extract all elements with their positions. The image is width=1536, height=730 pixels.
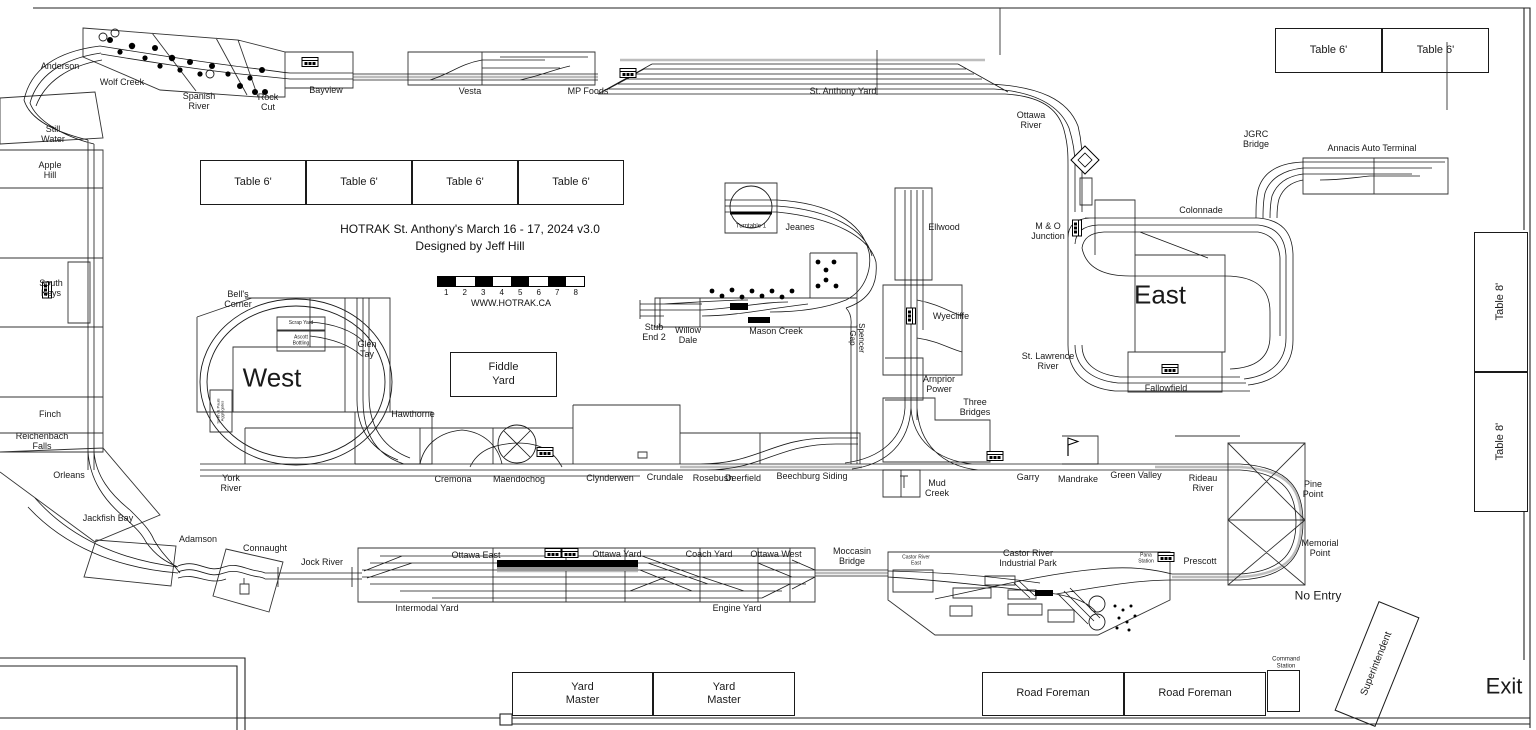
label-jock-river: Jock River: [301, 557, 343, 567]
label-ellwood: Ellwood: [928, 222, 960, 232]
label-engine-yard: Engine Yard: [713, 603, 762, 613]
label-jgrc-bridge: JGRC Bridge: [1243, 129, 1269, 149]
label-deerfield: Deerfield: [725, 473, 761, 483]
label-bayview: Bayview: [309, 85, 343, 95]
box-label: Road Foreman: [1016, 687, 1089, 700]
label-fallowfield: Fallowfield: [1145, 383, 1188, 393]
label-spanish-river: Spanish River: [183, 91, 216, 111]
label-willow-dale: Willow Dale: [675, 325, 701, 345]
box-label: Table 6': [234, 176, 272, 189]
label-pana-station: Pana Station: [1138, 553, 1154, 564]
box-label: Yard Master: [566, 681, 600, 707]
label-turntable-1: Turntable 1: [736, 224, 766, 231]
label-beechburg-siding: Beechburg Siding: [776, 471, 847, 481]
layout-plan: HOTRAK St. Anthony's March 16 - 17, 2024…: [0, 0, 1536, 730]
label-west: West: [243, 363, 302, 392]
label-spencer-gap: Spencer Gap: [847, 323, 865, 353]
box-road-foreman: Road Foreman: [1124, 672, 1266, 716]
label-exit: Exit: [1486, 675, 1523, 700]
label-mud-creek: Mud Creek: [925, 478, 949, 498]
scale-bar: 12345678 WWW.HOTRAK.CA: [437, 276, 585, 308]
label-wyecliffe: Wyecliffe: [933, 311, 969, 321]
label-still-water: Still Water: [41, 124, 65, 144]
scale-cell: [475, 277, 493, 286]
label-east: East: [1134, 280, 1186, 309]
label-st-lawrence-river: St. Lawrence River: [1022, 351, 1075, 371]
label-reichenbach-falls: Reichenbach Falls: [16, 431, 69, 451]
label-scrap-yard: Scrap Yard: [289, 321, 314, 327]
box-table-6: Table 6': [518, 160, 624, 205]
label-castor-river-industrial-park: Castor River Industrial Park: [999, 548, 1057, 568]
station-building-icon: [302, 58, 318, 67]
station-building-icon: [562, 549, 578, 558]
label-castor-river-east: Castor River East: [902, 555, 930, 566]
turntable-1-circle: [730, 186, 772, 228]
scale-number: 3: [474, 288, 493, 297]
label-ascott-bottling: Ascott Bottling: [293, 335, 310, 346]
box-table-6: Table 6': [200, 160, 306, 205]
module-outlines: [0, 8, 1448, 635]
label-colonnade: Colonnade: [1179, 205, 1223, 215]
station-building-icon: [1162, 365, 1178, 374]
box-table-6: Table 6': [1275, 28, 1382, 73]
scale-number: 7: [548, 288, 567, 297]
box-label: Table 6': [446, 176, 484, 189]
scale-bar-cells: [437, 276, 585, 287]
station-building-icon: [545, 549, 561, 558]
label-finch: Finch: [39, 409, 61, 419]
box-fiddle-yard: Fiddle Yard: [450, 352, 557, 397]
label-mp-foods: MP Foods: [568, 86, 609, 96]
flag-icon: [1068, 438, 1078, 456]
label-ottawa-east: Ottawa East: [451, 550, 500, 560]
label-m-o-junction: M & O Junction: [1031, 221, 1065, 241]
loops: [99, 29, 1105, 630]
box-label: Table 8': [1494, 283, 1507, 321]
label-connaught: Connaught: [243, 543, 287, 553]
label-cremona: Cremona: [434, 474, 471, 484]
box-box: [1267, 670, 1300, 712]
label-three-bridges: Three Bridges: [960, 397, 991, 417]
label-crundale: Crundale: [647, 472, 684, 482]
label-memorial-point: Memorial Point: [1301, 538, 1338, 558]
label-pine-point: Pine Point: [1303, 479, 1324, 499]
station-building-icon: [907, 308, 916, 324]
label-st-anthony-yard: St. Anthony Yard: [810, 86, 877, 96]
scale-number: 6: [530, 288, 549, 297]
label-wolf-creek: Wolf Creek: [100, 77, 144, 87]
label-clynderwen: Clynderwen: [586, 473, 634, 483]
box-table-6: Table 6': [412, 160, 518, 205]
label-intermodal-yard: Intermodal Yard: [395, 603, 458, 613]
label-york-river: York River: [220, 473, 241, 493]
label-vesta: Vesta: [459, 86, 482, 96]
label-prescott: Prescott: [1183, 556, 1216, 566]
scale-cell: [566, 277, 584, 286]
scale-bar-numbers: 12345678: [437, 288, 585, 297]
scale-cell: [438, 277, 456, 286]
box-yard-master: Yard Master: [512, 672, 653, 716]
label-green-valley: Green Valley: [1110, 470, 1161, 480]
box-label: Fiddle Yard: [489, 361, 519, 387]
label-coach-yard: Coach Yard: [686, 549, 733, 559]
box-label: Road Foreman: [1158, 687, 1231, 700]
station-building-icon: [620, 69, 636, 78]
label-orleans: Orleans: [53, 470, 85, 480]
label-mason-creek: Mason Creek: [749, 326, 803, 336]
label-annacis-auto-terminal: Annacis Auto Terminal: [1328, 143, 1417, 153]
box-yard-master: Yard Master: [653, 672, 795, 716]
label-maendochog: Maendochog: [493, 474, 545, 484]
icon-layer: [43, 58, 1179, 562]
box-label: Table 6': [340, 176, 378, 189]
box-table-6: Table 6': [1382, 28, 1489, 73]
gray-tracks: [353, 60, 1301, 577]
station-building-icon: [1073, 220, 1082, 236]
label-anderson: Anderson: [41, 61, 80, 71]
label-smith-pauls-aggregates: Smith & Pauls Aggregates: [217, 398, 226, 423]
scale-number: 8: [567, 288, 586, 297]
box-table-6: Table 6': [306, 160, 412, 205]
box-label: Table 6': [552, 176, 590, 189]
scale-cell: [529, 277, 547, 286]
label-rideau-river: Rideau River: [1189, 473, 1218, 493]
scale-cell: [456, 277, 474, 286]
box-label: Yard Master: [707, 681, 741, 707]
box-label: Table 8': [1494, 423, 1507, 461]
room-border: [0, 8, 1530, 730]
box-table-8: Table 8': [1474, 372, 1528, 512]
label-arnprior-power: Arnprior Power: [923, 374, 955, 394]
scale-number: 4: [493, 288, 512, 297]
box-road-foreman: Road Foreman: [982, 672, 1124, 716]
scale-number: 5: [511, 288, 530, 297]
label-bell-s-corner: Bell's Corner: [224, 289, 252, 309]
box-label: Table 6': [1310, 44, 1348, 57]
plan-title: HOTRAK St. Anthony's March 16 - 17, 2024…: [260, 222, 680, 236]
scale-cell: [511, 277, 529, 286]
label-rock-cut: Rock Cut: [258, 92, 279, 112]
box-label: Superintendent: [1359, 630, 1396, 697]
label-south-keys: South Keys: [39, 278, 63, 298]
label-no-entry: No Entry: [1295, 589, 1342, 602]
plan-designer: Designed by Jeff Hill: [260, 239, 680, 253]
station-building-icon: [537, 448, 553, 457]
label-mandrake: Mandrake: [1058, 474, 1098, 484]
label-garry: Garry: [1017, 472, 1040, 482]
label-hawthorne: Hawthorne: [391, 409, 435, 419]
track-diagram: [0, 0, 1536, 730]
scale-cell: [493, 277, 511, 286]
storage-tank: [1089, 596, 1105, 612]
label-ottawa-west: Ottawa West: [750, 549, 801, 559]
scale-cell: [548, 277, 566, 286]
label-stub-end-2: Stub End 2: [642, 322, 666, 342]
box-table-8: Table 8': [1474, 232, 1528, 372]
label-moccasin-bridge: Moccasin Bridge: [833, 546, 871, 566]
label-adamson: Adamson: [179, 534, 217, 544]
station-building-icon: [1158, 553, 1174, 562]
label-glen-tay: Glen Tay: [357, 339, 376, 359]
box-label: Table 6': [1417, 44, 1455, 57]
label-jackfish-bay: Jackfish Bay: [83, 513, 134, 523]
website-url: WWW.HOTRAK.CA: [437, 298, 585, 308]
label-apple-hill: Apple Hill: [38, 160, 61, 180]
scale-number: 1: [437, 288, 456, 297]
storage-tank: [1089, 614, 1105, 630]
label-ottawa-yard: Ottawa Yard: [592, 549, 641, 559]
scale-number: 2: [456, 288, 475, 297]
station-building-icon: [987, 452, 1003, 461]
label-command-station: Command Station: [1272, 656, 1300, 669]
label-ottawa-river: Ottawa River: [1017, 110, 1046, 130]
label-jeanes: Jeanes: [785, 222, 814, 232]
tracks: [24, 46, 1445, 624]
title-block: HOTRAK St. Anthony's March 16 - 17, 2024…: [260, 222, 680, 253]
